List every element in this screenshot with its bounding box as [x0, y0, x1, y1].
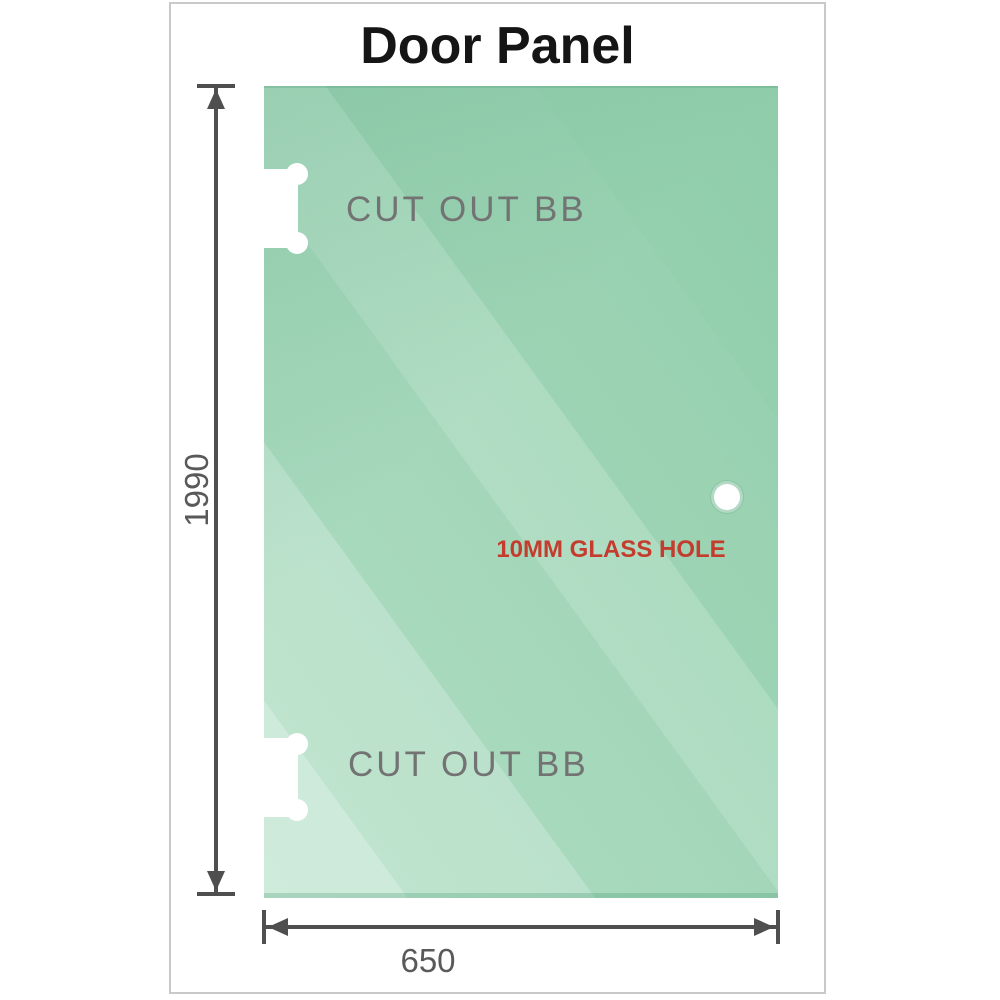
height-dimension-label: 1990: [178, 453, 216, 526]
glass-hole-label: 10MM GLASS HOLE: [496, 536, 725, 564]
cutout-drill-hole: [286, 163, 308, 185]
dimension-cap: [776, 910, 780, 944]
glass-panel: CUT OUT BB CUT OUT BB 10MM GLASS HOLE: [264, 86, 778, 898]
arrow-right-icon: [754, 918, 774, 936]
cutout-label-top: CUT OUT BB: [346, 190, 587, 230]
arrow-up-icon: [207, 89, 225, 109]
dimension-line: [266, 925, 776, 929]
glass-hole: [714, 484, 740, 510]
dimension-cap: [197, 892, 235, 896]
cutout-label-bottom: CUT OUT BB: [348, 745, 589, 785]
arrow-down-icon: [207, 871, 225, 891]
dimension-cap: [262, 910, 266, 944]
cutout-drill-hole: [286, 733, 308, 755]
cutout-drill-hole: [286, 799, 308, 821]
arrow-left-icon: [268, 918, 288, 936]
page-title: Door Panel: [169, 16, 826, 76]
cutout-drill-hole: [286, 232, 308, 254]
dimension-cap: [197, 84, 235, 88]
width-dimension-label: 650: [400, 942, 455, 980]
diagram-canvas: Door Panel CUT OUT BB CUT OUT BB 10MM GL…: [0, 0, 1000, 1000]
